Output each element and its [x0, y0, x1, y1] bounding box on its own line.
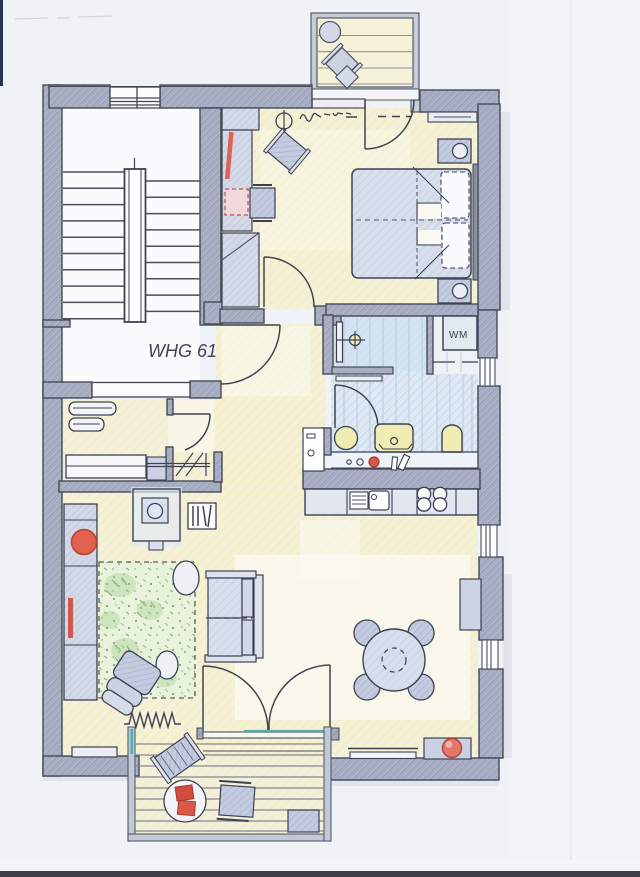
svg-text:WHG 61: WHG 61: [148, 341, 217, 361]
svg-text:WM: WM: [449, 330, 468, 341]
